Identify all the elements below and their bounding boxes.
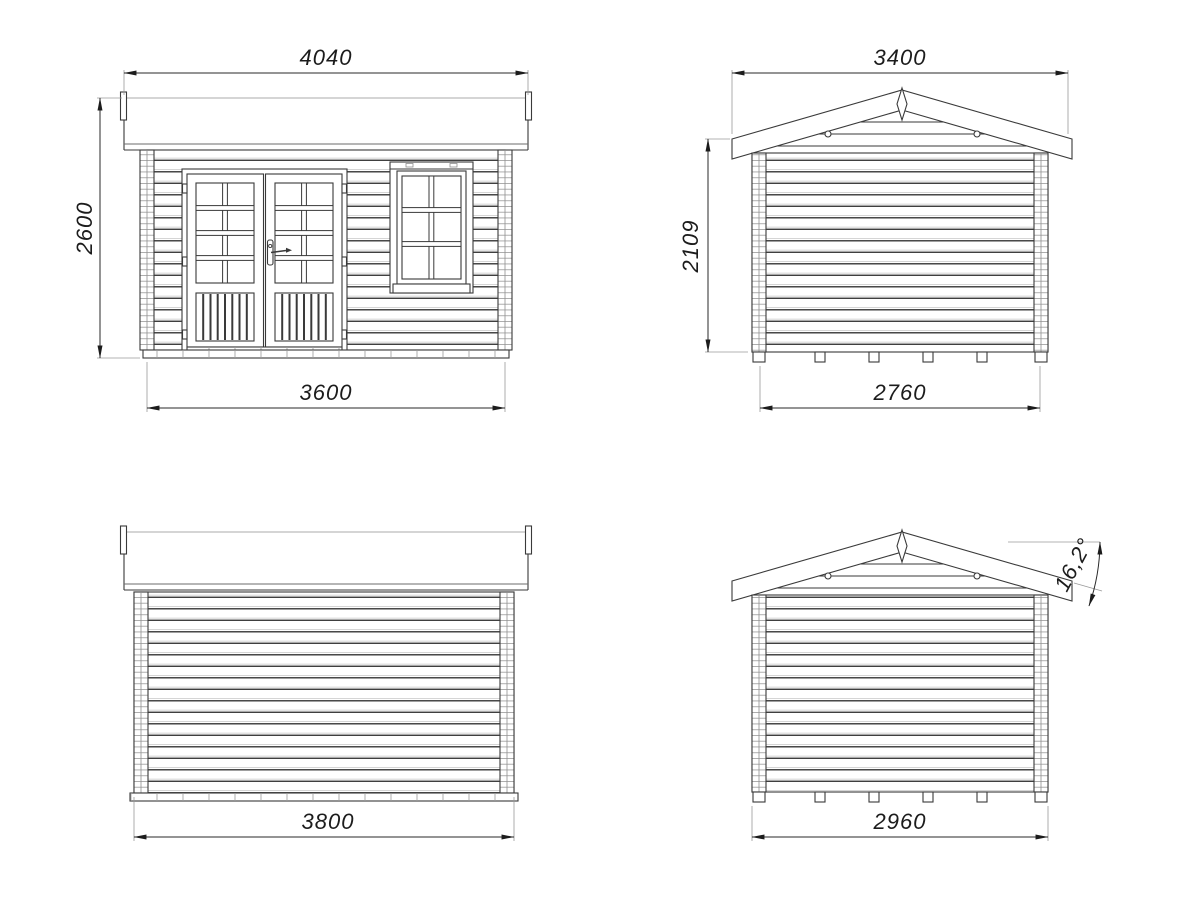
rear-base-strip (130, 793, 518, 801)
dim-text-3400: 3400 (874, 45, 927, 70)
side-b-corner-logs-left (752, 595, 766, 792)
rear-roof-fascia (121, 526, 532, 590)
front-roof-fascia (121, 92, 532, 150)
side-a-wall (752, 153, 1048, 352)
rear-wall (134, 592, 514, 793)
dim-text-2109: 2109 (678, 220, 703, 274)
dim-text-angle: 16,2° (1049, 534, 1098, 596)
roof-purlin-end-left (121, 92, 127, 120)
side-a-gable-roof (732, 88, 1072, 159)
side-a-dim-roof-width: 3400 (732, 45, 1068, 134)
dim-text-3800: 3800 (302, 809, 355, 834)
dim-text-3600: 3600 (300, 380, 353, 405)
side-a-foundation-feet (753, 352, 1047, 362)
front-elevation-view: 4040 2600 3600 (72, 45, 532, 412)
drawing-canvas: 4040 2600 3600 (0, 0, 1200, 900)
roof-tie-dowel-right (974, 573, 980, 579)
double-door (182, 169, 347, 352)
dim-text-2760: 2760 (873, 380, 927, 405)
front-dim-wall-width: 3600 (147, 362, 505, 412)
side-b-foundation-feet (753, 792, 1047, 802)
side-b-corner-logs-right (1034, 595, 1048, 792)
side-elevation-a-view: 3400 2109 2760 (678, 45, 1072, 412)
front-corner-logs-right (498, 150, 512, 350)
window-sill (393, 284, 470, 293)
door-right-glazing (275, 183, 333, 283)
front-base-strip (143, 350, 509, 358)
side-b-gable-roof (732, 530, 1072, 601)
rear-corner-logs-left (134, 592, 148, 793)
side-a-dim-height: 2109 (678, 139, 748, 352)
roof-purlin-end-right (526, 92, 532, 120)
side-b-dim-wall-width: 2960 (752, 806, 1048, 841)
side-a-corner-logs-left (752, 153, 766, 352)
roof-purlin-end-right (526, 526, 532, 554)
front-window (390, 162, 473, 293)
front-dim-roof-width: 4040 (124, 45, 528, 95)
roof-purlin-end-left (121, 526, 127, 554)
door-left-glazing (196, 183, 254, 283)
door-right-panel (275, 293, 333, 341)
side-a-dim-wall-width: 2760 (760, 366, 1040, 412)
side-b-wall (752, 595, 1048, 792)
side-elevation-b-view: 16,2° 2960 (732, 530, 1102, 841)
front-corner-logs-left (140, 150, 154, 350)
roof-tie-dowel-right (974, 131, 980, 137)
dim-text-4040: 4040 (300, 45, 353, 70)
roof-tie-dowel-left (825, 131, 831, 137)
rear-dim-wall-width: 3800 (134, 797, 514, 841)
roof-tie-dowel-left (825, 573, 831, 579)
rear-corner-logs-right (500, 592, 514, 793)
dim-text-2600: 2600 (72, 202, 97, 256)
dim-text-2960: 2960 (873, 809, 927, 834)
elevation-drawing: 4040 2600 3600 (0, 0, 1200, 900)
side-a-corner-logs-right (1034, 153, 1048, 352)
rear-elevation-view: 3800 (121, 526, 532, 841)
door-left-panel (196, 293, 254, 341)
